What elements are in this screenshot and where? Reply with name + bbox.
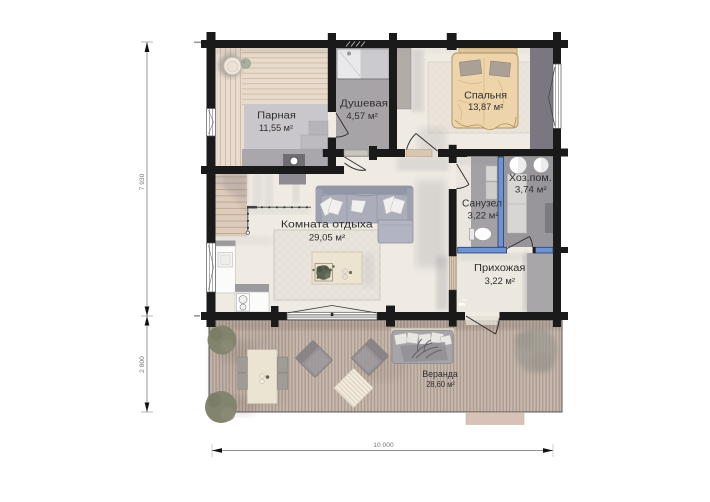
svg-text:Спальня: Спальня [464, 90, 507, 101]
svg-text:4,57 м²: 4,57 м² [346, 111, 378, 121]
svg-text:7 930: 7 930 [139, 173, 146, 190]
svg-text:Санузел: Санузел [462, 198, 502, 209]
svg-text:13,87 м²: 13,87 м² [468, 102, 503, 112]
svg-text:11,55 м²: 11,55 м² [259, 123, 293, 133]
svg-text:Комната отдыха: Комната отдыха [281, 220, 373, 231]
svg-text:Веранда: Веранда [422, 369, 458, 379]
svg-text:3,22 м²: 3,22 м² [485, 276, 515, 286]
svg-text:29,05 м²: 29,05 м² [309, 232, 345, 242]
svg-text:Хоз.пом.: Хоз.пом. [509, 173, 552, 184]
svg-text:Душевая: Душевая [340, 98, 388, 109]
svg-text:3,74 м²: 3,74 м² [515, 185, 547, 195]
svg-text:Прихожая: Прихожая [474, 263, 525, 274]
svg-text:2 800: 2 800 [139, 356, 146, 373]
svg-text:28,60 м²: 28,60 м² [426, 380, 455, 389]
svg-text:Парная: Парная [257, 111, 296, 122]
svg-text:3,22 м²: 3,22 м² [468, 211, 499, 221]
svg-text:10 000: 10 000 [373, 442, 394, 449]
